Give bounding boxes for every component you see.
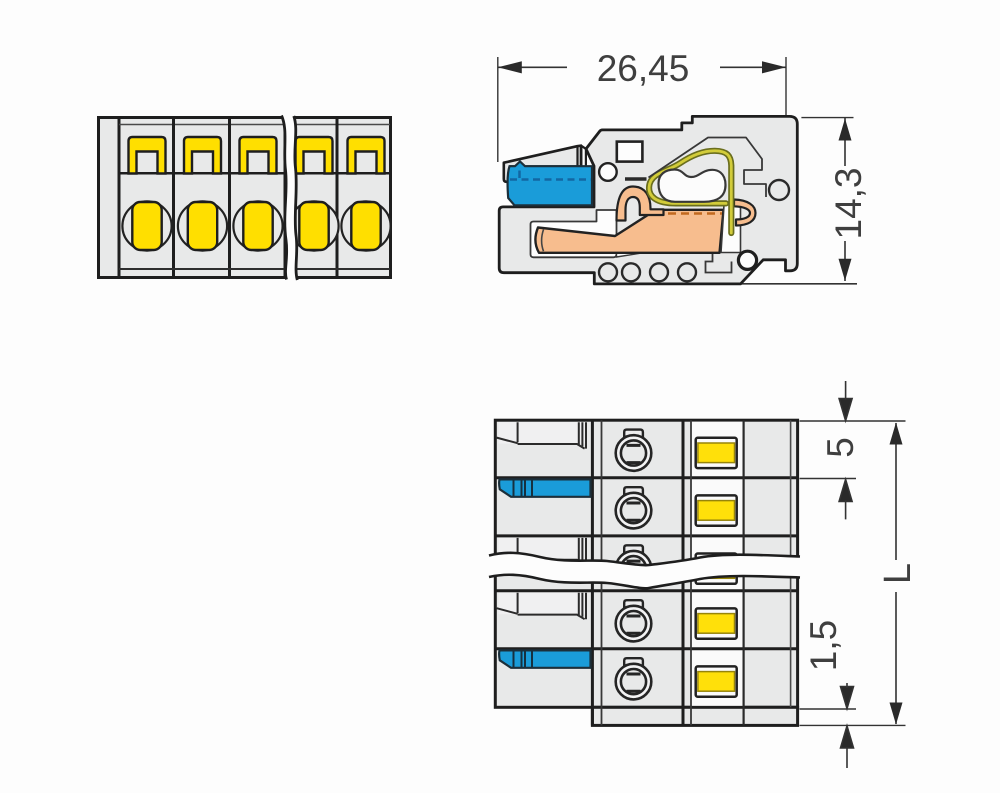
svg-text:1,5: 1,5 xyxy=(803,620,844,671)
svg-text:5: 5 xyxy=(820,437,861,458)
svg-text:26,45: 26,45 xyxy=(597,48,690,89)
svg-text:14,3: 14,3 xyxy=(828,167,869,239)
svg-text:L: L xyxy=(877,563,919,584)
